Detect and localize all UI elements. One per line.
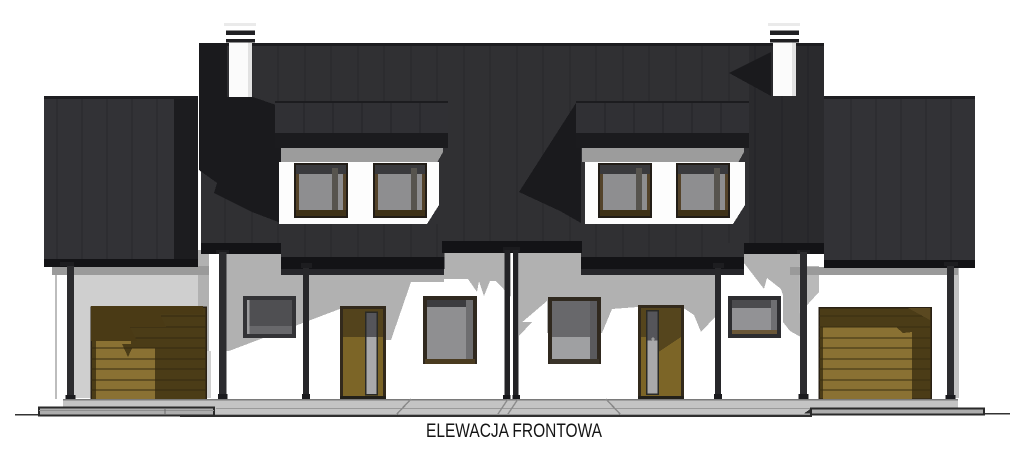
- svg-text:ELEWACJA FRONTOWA: ELEWACJA FRONTOWA: [426, 421, 602, 442]
